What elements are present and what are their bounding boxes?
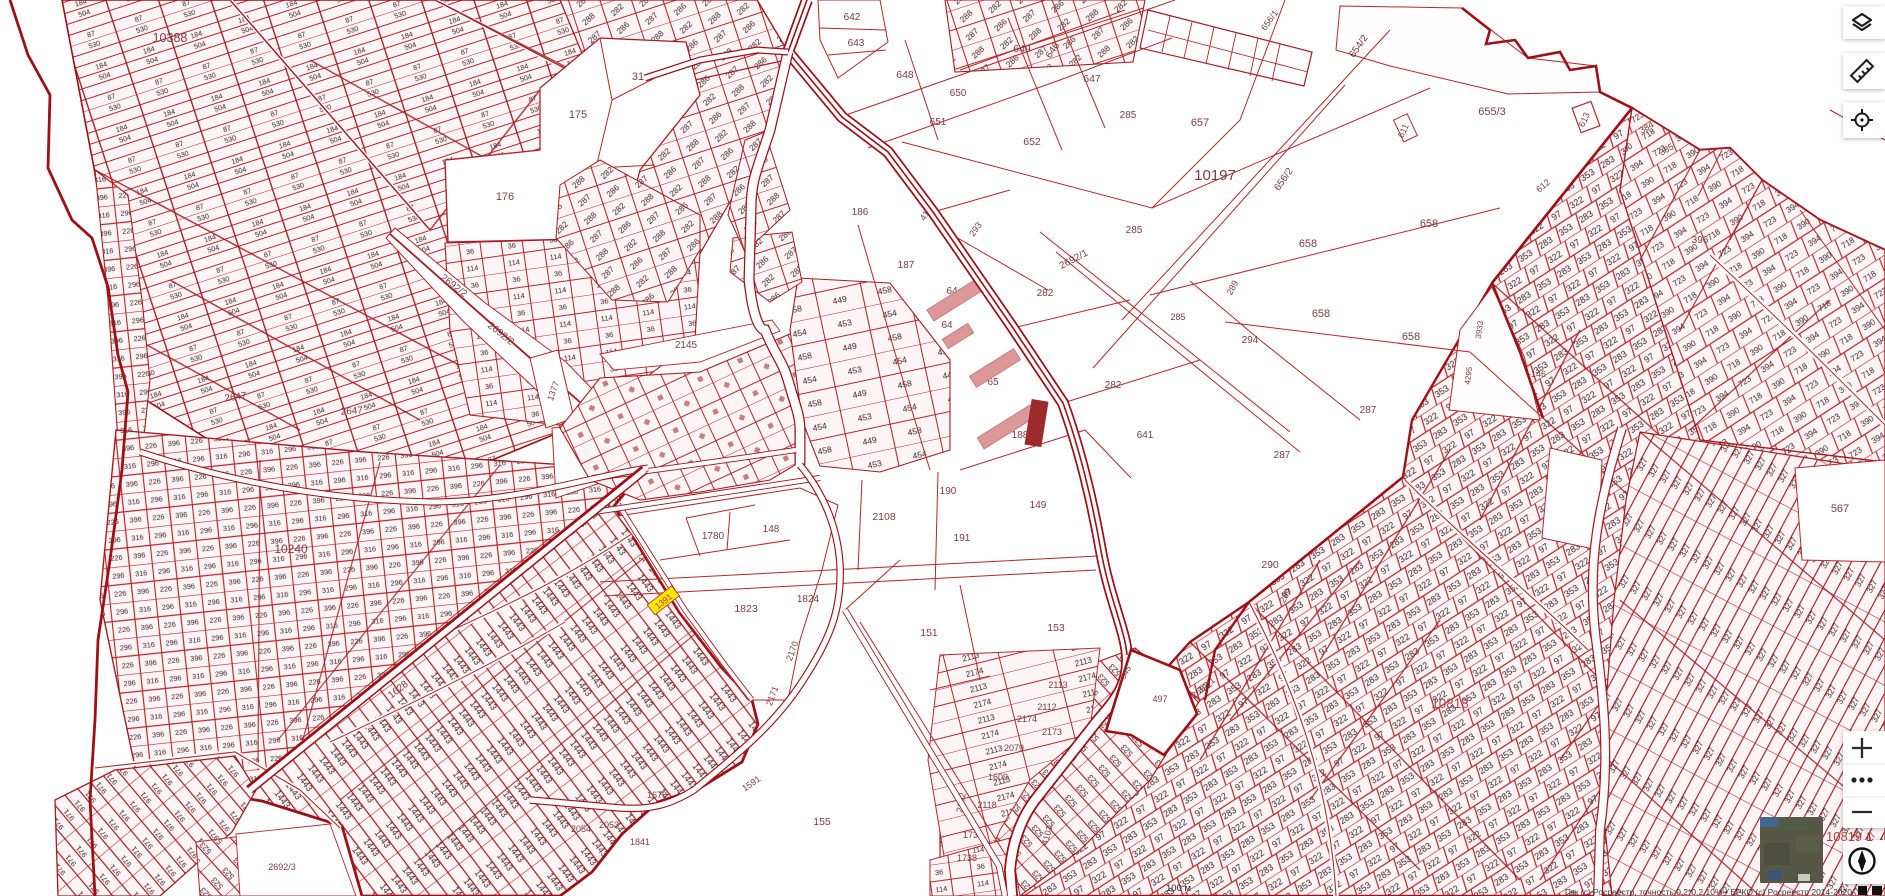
svg-text:290: 290 [1261,559,1279,571]
svg-text:186: 186 [852,207,869,218]
svg-text:1738: 1738 [957,853,977,863]
svg-text:650: 650 [950,88,967,99]
svg-text:175: 175 [569,109,587,121]
svg-text:10197: 10197 [1194,167,1236,184]
svg-text:2108: 2108 [872,511,896,523]
svg-text:1824: 1824 [797,594,820,605]
svg-text:648: 648 [896,69,914,81]
svg-text:497: 497 [1152,694,1167,704]
svg-text:655/3: 655/3 [1478,106,1506,118]
svg-text:294: 294 [1242,335,1259,346]
svg-text:1670: 1670 [647,790,667,800]
svg-text:10388: 10388 [153,31,188,45]
svg-text:649: 649 [1013,43,1031,55]
svg-text:647: 647 [1083,73,1101,85]
svg-text:10818: 10818 [1431,696,1469,711]
svg-text:1780: 1780 [702,531,725,542]
svg-text:651: 651 [930,117,947,128]
svg-text:285: 285 [1126,225,1143,236]
svg-text:2174: 2174 [1017,714,1037,724]
svg-text:658: 658 [1299,238,1317,250]
svg-text:287: 287 [1360,405,1377,416]
svg-text:567: 567 [1831,503,1849,515]
svg-text:2145: 2145 [675,340,698,351]
svg-text:285: 285 [1170,312,1185,322]
svg-text:151: 151 [920,627,938,639]
svg-text:657: 657 [1191,117,1209,129]
svg-text:658: 658 [1420,218,1438,230]
svg-text:2173: 2173 [1042,727,1062,737]
svg-text:282: 282 [1037,288,1054,299]
svg-text:148: 148 [763,524,780,535]
svg-text:190: 190 [940,486,957,497]
svg-text:2054: 2054 [571,824,591,834]
svg-text:153: 153 [1047,622,1065,634]
svg-text:155: 155 [813,816,831,828]
svg-text:285: 285 [1120,110,1137,121]
svg-text:658: 658 [1312,308,1330,320]
svg-text:176: 176 [496,191,514,203]
svg-text:287: 287 [1274,450,1291,461]
svg-text:2053: 2053 [599,820,619,830]
svg-text:1841: 1841 [630,837,650,847]
svg-text:282: 282 [1105,380,1122,391]
svg-text:2113: 2113 [1048,680,1067,690]
svg-text:187: 187 [898,260,915,271]
svg-text:-146: -146 [1528,369,1546,379]
svg-text:643: 643 [848,38,865,49]
svg-text:2647: 2647 [340,405,363,418]
svg-text:10240: 10240 [274,542,308,556]
svg-text:2118: 2118 [977,800,996,810]
svg-text:149: 149 [1030,500,1047,511]
svg-text:Пкк (с) Росреестр, точность 0,: Пкк (с) Росреестр, точность 0,2*0,2 10% … [1565,887,1852,896]
svg-text:2112: 2112 [1037,702,1056,712]
svg-text:31: 31 [632,71,644,83]
svg-text:658: 658 [1402,331,1420,343]
svg-text:642: 642 [844,12,861,23]
svg-text:1609: 1609 [988,772,1008,782]
svg-text:396: 396 [1692,235,1709,246]
svg-text:641: 641 [1137,430,1154,441]
svg-text:2692/3: 2692/3 [268,862,296,872]
svg-text:1823: 1823 [734,603,758,615]
svg-text:100 м: 100 м [1166,883,1191,894]
svg-text:10819 1: 10819 1 [1826,829,1873,844]
svg-text:2079: 2079 [1004,743,1024,753]
svg-text:191: 191 [954,533,971,544]
svg-text:64: 64 [941,320,953,331]
svg-text:652: 652 [1023,136,1041,148]
